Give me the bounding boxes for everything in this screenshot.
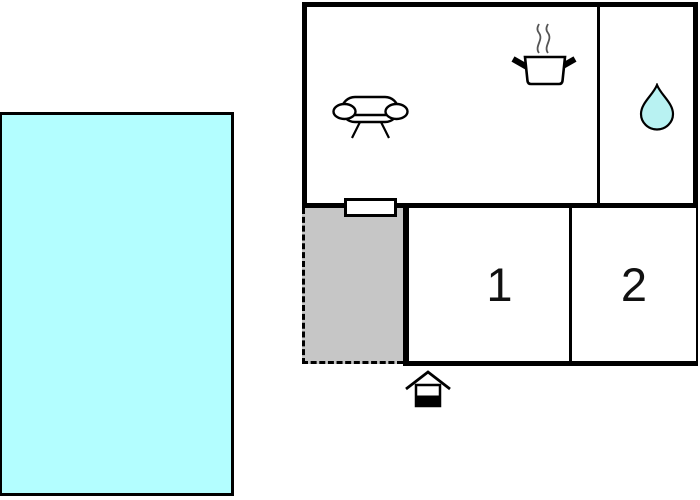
water-drop-shape: [641, 85, 673, 130]
water-drop-icon: [637, 83, 677, 131]
cooking-pot-icon: [508, 22, 580, 88]
sofa-armrest-right: [386, 104, 408, 119]
floor-plan: 1 2: [0, 0, 700, 500]
room-2: 2: [572, 208, 696, 361]
sofa-leg-right: [381, 122, 389, 138]
terrace: [302, 208, 403, 364]
entrance-body-filled: [416, 396, 440, 407]
room-1-label: 1: [486, 261, 512, 308]
room-1: 1: [409, 208, 569, 361]
sofa-leg-left: [352, 122, 360, 138]
entrance-house-icon: [403, 368, 453, 410]
steam-line: [537, 24, 540, 53]
sofa-icon: [328, 92, 410, 142]
window-symbol: [344, 198, 397, 217]
room-2-label: 2: [621, 261, 647, 308]
steam-line: [546, 24, 549, 53]
pot-body: [525, 57, 565, 84]
bedrooms-block: 1 2: [403, 208, 698, 366]
sofa-armrest-left: [334, 104, 356, 119]
swimming-pool: [0, 112, 234, 496]
wall-bathroom-divider: [597, 7, 600, 203]
